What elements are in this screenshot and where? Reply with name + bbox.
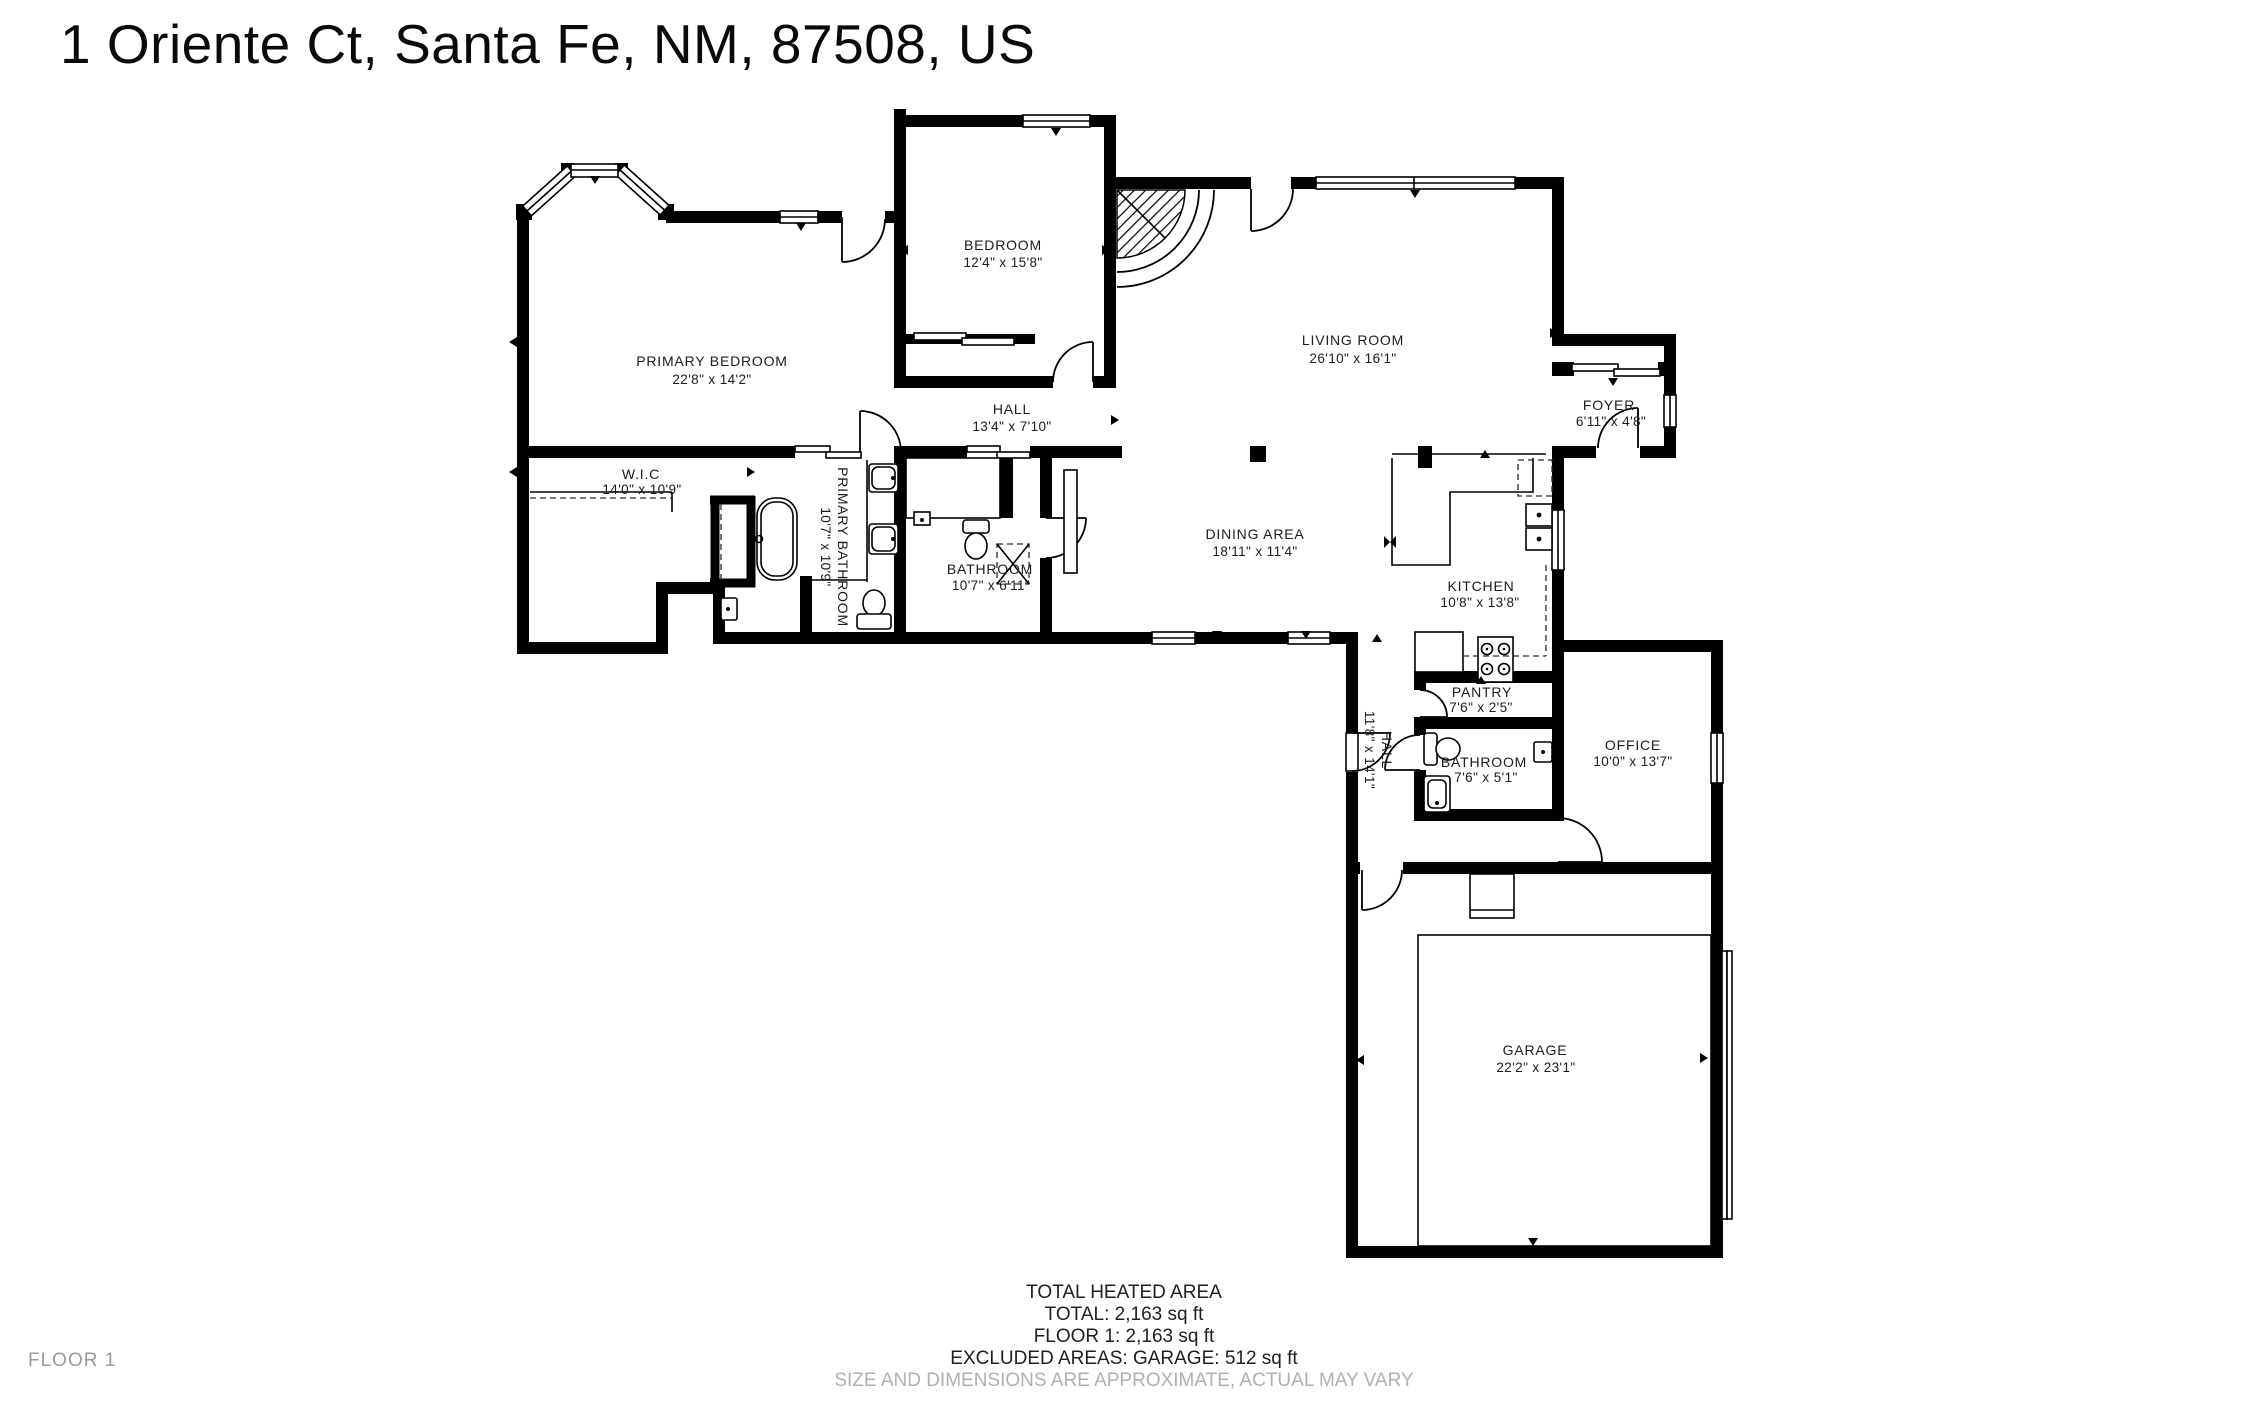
- sink-icon: [721, 598, 737, 620]
- svg-text:10'8" x 13'8": 10'8" x 13'8": [1440, 595, 1519, 610]
- svg-text:13'4" x 7'10": 13'4" x 7'10": [972, 419, 1051, 434]
- room-label-office: OFFICE 10'0" x 13'7": [1593, 737, 1672, 769]
- foyer-closet-sliding-door: [1572, 364, 1660, 376]
- window: [1316, 177, 1515, 189]
- svg-text:BATHROOM: BATHROOM: [1441, 754, 1527, 770]
- kitchen-counter-lower: [1415, 632, 1463, 672]
- svg-text:BEDROOM: BEDROOM: [964, 237, 1042, 253]
- window: [1152, 632, 1195, 644]
- sink-icon: [869, 524, 898, 554]
- door-living-room: [1251, 189, 1293, 231]
- window: [1023, 115, 1090, 127]
- total-heated-area-label: TOTAL HEATED AREA: [834, 1282, 1413, 1304]
- svg-text:HALL: HALL: [993, 401, 1031, 417]
- svg-text:10'0" x 13'7": 10'0" x 13'7": [1593, 754, 1672, 769]
- sink-icon: [869, 464, 898, 492]
- svg-text:DINING AREA: DINING AREA: [1205, 526, 1304, 542]
- svg-text:LIVING ROOM: LIVING ROOM: [1302, 332, 1404, 348]
- svg-text:6'11" x 4'8": 6'11" x 4'8": [1576, 414, 1646, 429]
- double-oven-icon: [1526, 504, 1552, 550]
- svg-text:W.I.C: W.I.C: [622, 466, 660, 482]
- svg-text:14'0" x 10'9": 14'0" x 10'9": [602, 482, 681, 497]
- sink-icon: [914, 512, 930, 525]
- svg-text:11'8" x 14'1": 11'8" x 14'1": [1362, 711, 1377, 789]
- area-summary: TOTAL HEATED AREA TOTAL: 2,163 sq ft FLO…: [834, 1282, 1413, 1392]
- room-label-dining-area: DINING AREA 18'11" x 11'4": [1205, 526, 1304, 559]
- window: [1664, 395, 1676, 427]
- water-heater-icon: [1470, 874, 1514, 918]
- kitchen-counter: [1392, 458, 1533, 565]
- room-label-bedroom: BEDROOM 12'4" x 15'8": [963, 237, 1042, 270]
- room-label-kitchen: KITCHEN 10'8" x 13'8": [1440, 578, 1519, 610]
- window: [1711, 733, 1723, 783]
- svg-text:22'2" x 23'1": 22'2" x 23'1": [1496, 1060, 1575, 1075]
- window: [780, 211, 818, 223]
- svg-text:KITCHEN: KITCHEN: [1447, 578, 1514, 594]
- svg-text:7'6" x 2'5": 7'6" x 2'5": [1449, 700, 1512, 715]
- svg-text:26'10" x 16'1": 26'10" x 16'1": [1309, 351, 1396, 366]
- exterior-walls: [517, 109, 1723, 1258]
- room-label-hall-2: HALL 11'8" x 14'1": [1362, 711, 1395, 789]
- svg-text:12'4" x 15'8": 12'4" x 15'8": [963, 255, 1042, 270]
- svg-text:10'7" x 6'11": 10'7" x 6'11": [952, 578, 1030, 593]
- room-label-living-room: LIVING ROOM 26'10" x 16'1": [1302, 332, 1404, 366]
- svg-text:22'8" x 14'2": 22'8" x 14'2": [672, 372, 751, 387]
- sliding-door-panel: [1064, 470, 1077, 573]
- garage-door: [1722, 951, 1732, 1219]
- sink-icon: [1534, 742, 1552, 762]
- room-label-primary-bathroom: PRIMARY BATHROOM 10'7" x 10'9": [818, 467, 851, 627]
- svg-text:OFFICE: OFFICE: [1605, 737, 1661, 753]
- door-garage: [1362, 870, 1402, 910]
- room-label-wic: W.I.C 14'0" x 10'9": [602, 466, 681, 497]
- floor-label: FLOOR 1: [28, 1350, 116, 1372]
- svg-text:BATHROOM: BATHROOM: [947, 561, 1033, 577]
- toilet-icon: [963, 520, 989, 559]
- disclaimer: SIZE AND DIMENSIONS ARE APPROXIMATE, ACT…: [834, 1370, 1413, 1392]
- room-label-bathroom-2: BATHROOM 7'6" x 5'1": [1441, 754, 1527, 785]
- svg-text:7'6" x 5'1": 7'6" x 5'1": [1454, 770, 1517, 785]
- room-label-primary-bedroom: PRIMARY BEDROOM 22'8" x 14'2": [636, 353, 788, 387]
- toilet-icon: [857, 590, 891, 629]
- bay-window-right: [616, 165, 669, 215]
- pocket-door: [967, 446, 1030, 458]
- door-bedroom: [1053, 342, 1093, 382]
- bathtub-icon: [756, 498, 798, 580]
- svg-text:HALL: HALL: [1379, 731, 1395, 769]
- floor-plan: PRIMARY BEDROOM 22'8" x 14'2" BEDROOM 12…: [0, 0, 2245, 1402]
- total-area-value: TOTAL: 2,163 sq ft: [834, 1304, 1413, 1326]
- bay-window-left: [523, 166, 576, 216]
- svg-text:PRIMARY BATHROOM: PRIMARY BATHROOM: [835, 467, 851, 627]
- floor1-area-value: FLOOR 1: 2,163 sq ft: [834, 1326, 1413, 1348]
- bay-window: [516, 163, 674, 220]
- svg-text:PRIMARY BEDROOM: PRIMARY BEDROOM: [636, 353, 788, 369]
- fireplace-icon: [1117, 190, 1214, 287]
- room-label-bathroom: BATHROOM 10'7" x 6'11": [947, 561, 1033, 593]
- svg-text:18'11" x 11'4": 18'11" x 11'4": [1212, 544, 1297, 559]
- garage-slab: [1418, 935, 1711, 1246]
- svg-text:10'7" x 10'9": 10'7" x 10'9": [818, 507, 833, 586]
- door-primary-suite: [860, 411, 901, 452]
- refrigerator-icon: [1518, 460, 1552, 496]
- svg-text:FOYER: FOYER: [1583, 397, 1635, 413]
- room-label-pantry: PANTRY 7'6" x 2'5": [1449, 684, 1512, 715]
- stove-icon: [1478, 637, 1513, 682]
- kitchen-fixtures: [1392, 454, 1552, 682]
- excluded-areas-value: EXCLUDED AREAS: GARAGE: 512 sq ft: [834, 1348, 1413, 1370]
- room-label-garage: GARAGE 22'2" x 23'1": [1496, 1042, 1575, 1075]
- window: [1552, 510, 1564, 570]
- door-pantry: [1420, 690, 1447, 717]
- door-office: [1558, 818, 1602, 862]
- room-label-foyer: FOYER 6'11" x 4'8": [1576, 397, 1646, 429]
- svg-text:PANTRY: PANTRY: [1452, 684, 1512, 700]
- svg-text:GARAGE: GARAGE: [1503, 1042, 1568, 1058]
- room-label-hall: HALL 13'4" x 7'10": [972, 401, 1051, 434]
- sink-icon: [1424, 776, 1450, 812]
- vanity-cabinet: [906, 458, 1000, 518]
- pocket-door: [795, 446, 861, 458]
- floor-plan-page: 1 Oriente Ct, Santa Fe, NM, 87508, US: [0, 0, 2245, 1402]
- door-primary-bedroom: [842, 217, 885, 262]
